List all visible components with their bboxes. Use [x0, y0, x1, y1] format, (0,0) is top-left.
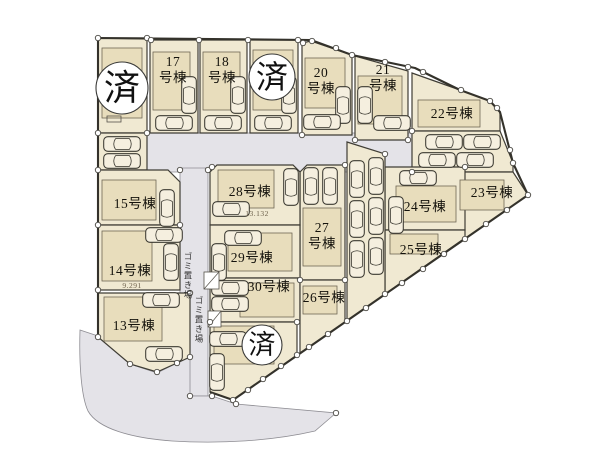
- site-plan-drawing: 済 済 済 17 号棟 18 号棟 20 号棟 21 号棟 27 号棟 22号棟…: [0, 0, 600, 449]
- lot-21-label-line2: 号棟: [369, 78, 397, 93]
- car-icon: [350, 201, 365, 238]
- car-icon: [323, 168, 338, 205]
- car-icon: [389, 197, 404, 234]
- car-icon: [369, 158, 384, 195]
- garbage-area-label: ゴミ置き場: [183, 251, 193, 299]
- car-icon: [160, 190, 175, 227]
- lot-27-label-line2: 号棟: [308, 236, 336, 251]
- car-icon: [156, 116, 193, 131]
- lot-22-label: 22号棟: [431, 106, 474, 121]
- sold-marker: 済: [242, 325, 282, 365]
- lot28-dimension: 13.132: [245, 209, 269, 218]
- lot-24-label: 24号棟: [404, 199, 447, 214]
- car-icon: [210, 332, 247, 347]
- lot-20-label-line2: 号棟: [307, 81, 335, 96]
- car-icon: [284, 169, 299, 206]
- car-icon: [104, 154, 141, 169]
- car-icon: [210, 354, 225, 391]
- lot-25-label: 25号棟: [400, 242, 443, 257]
- car-icon: [213, 202, 250, 217]
- car-icon: [304, 168, 319, 205]
- car-icon: [419, 153, 456, 168]
- lot-26-label: 26号棟: [303, 290, 346, 305]
- car-icon: [304, 115, 341, 130]
- lot-17-label-line1: 17: [166, 54, 181, 69]
- car-icon: [457, 153, 494, 168]
- car-icon: [146, 347, 183, 362]
- car-icon: [104, 137, 141, 152]
- lot-28-label: 28号棟: [229, 184, 272, 199]
- car-icon: [400, 171, 437, 186]
- lot-18-label-line1: 18: [215, 54, 230, 69]
- car-icon: [369, 198, 384, 235]
- lot-18-label-line2: 号棟: [208, 70, 236, 85]
- sold-marker: 済: [249, 54, 295, 100]
- car-icon: [350, 161, 365, 198]
- lot14-dimension: 9.291: [122, 281, 141, 290]
- lot-27-label-line1: 27: [315, 220, 330, 235]
- car-icon: [369, 238, 384, 275]
- garbage-area-label: ゴミ置き場: [194, 295, 204, 343]
- lot-15-label: 15号棟: [114, 196, 157, 211]
- car-icon: [255, 116, 292, 131]
- car-icon: [164, 244, 179, 281]
- car-icon: [374, 116, 411, 131]
- lot-14-label: 14号棟: [109, 263, 152, 278]
- car-icon: [225, 231, 262, 246]
- car-icon: [205, 116, 242, 131]
- lot-21-label-line1: 21: [376, 62, 391, 77]
- lot-30-label: 30号棟: [248, 279, 291, 294]
- car-icon: [146, 228, 183, 243]
- lot-29-label: 29号棟: [231, 250, 274, 265]
- car-icon: [464, 135, 501, 150]
- lot-23-label: 23号棟: [471, 185, 514, 200]
- lot-13-label: 13号棟: [113, 318, 156, 333]
- sold-label: 済: [249, 330, 276, 360]
- car-icon: [212, 297, 249, 312]
- site-plan[interactable]: 済 済 済 17 号棟 18 号棟 20 号棟 21 号棟 27 号棟 22号棟…: [0, 0, 600, 449]
- sold-label: 済: [104, 68, 140, 108]
- car-icon: [350, 241, 365, 278]
- sold-marker: 済: [96, 62, 148, 114]
- sold-label: 済: [256, 59, 288, 95]
- car-icon: [143, 293, 180, 308]
- lot-20-label-line1: 20: [314, 65, 329, 80]
- car-icon: [426, 135, 463, 150]
- lot-17-label-line2: 号棟: [159, 70, 187, 85]
